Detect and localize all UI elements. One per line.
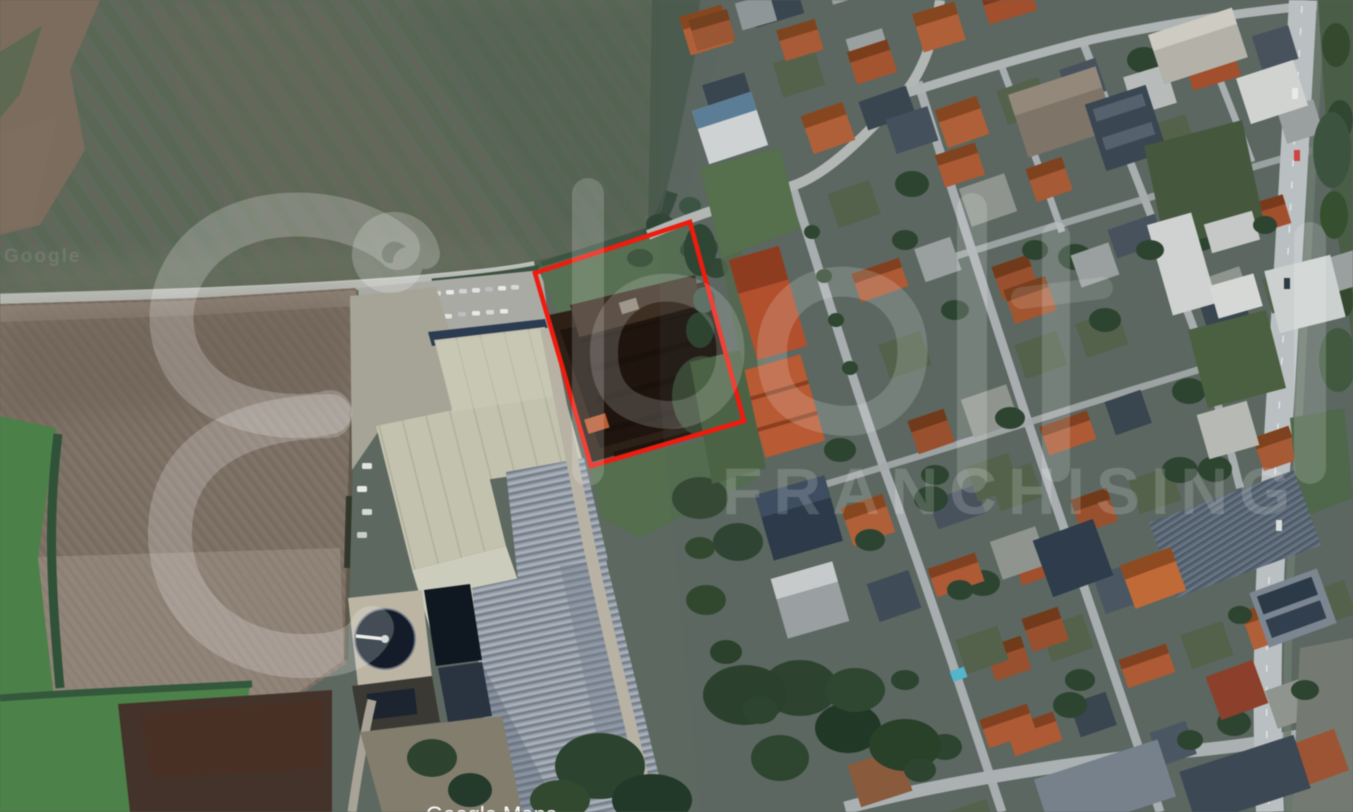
svg-text:FRANCHISING: FRANCHISING xyxy=(722,454,1301,528)
svg-text:Google Maps: Google Maps xyxy=(426,802,557,812)
svg-text:Google: Google xyxy=(4,246,81,267)
